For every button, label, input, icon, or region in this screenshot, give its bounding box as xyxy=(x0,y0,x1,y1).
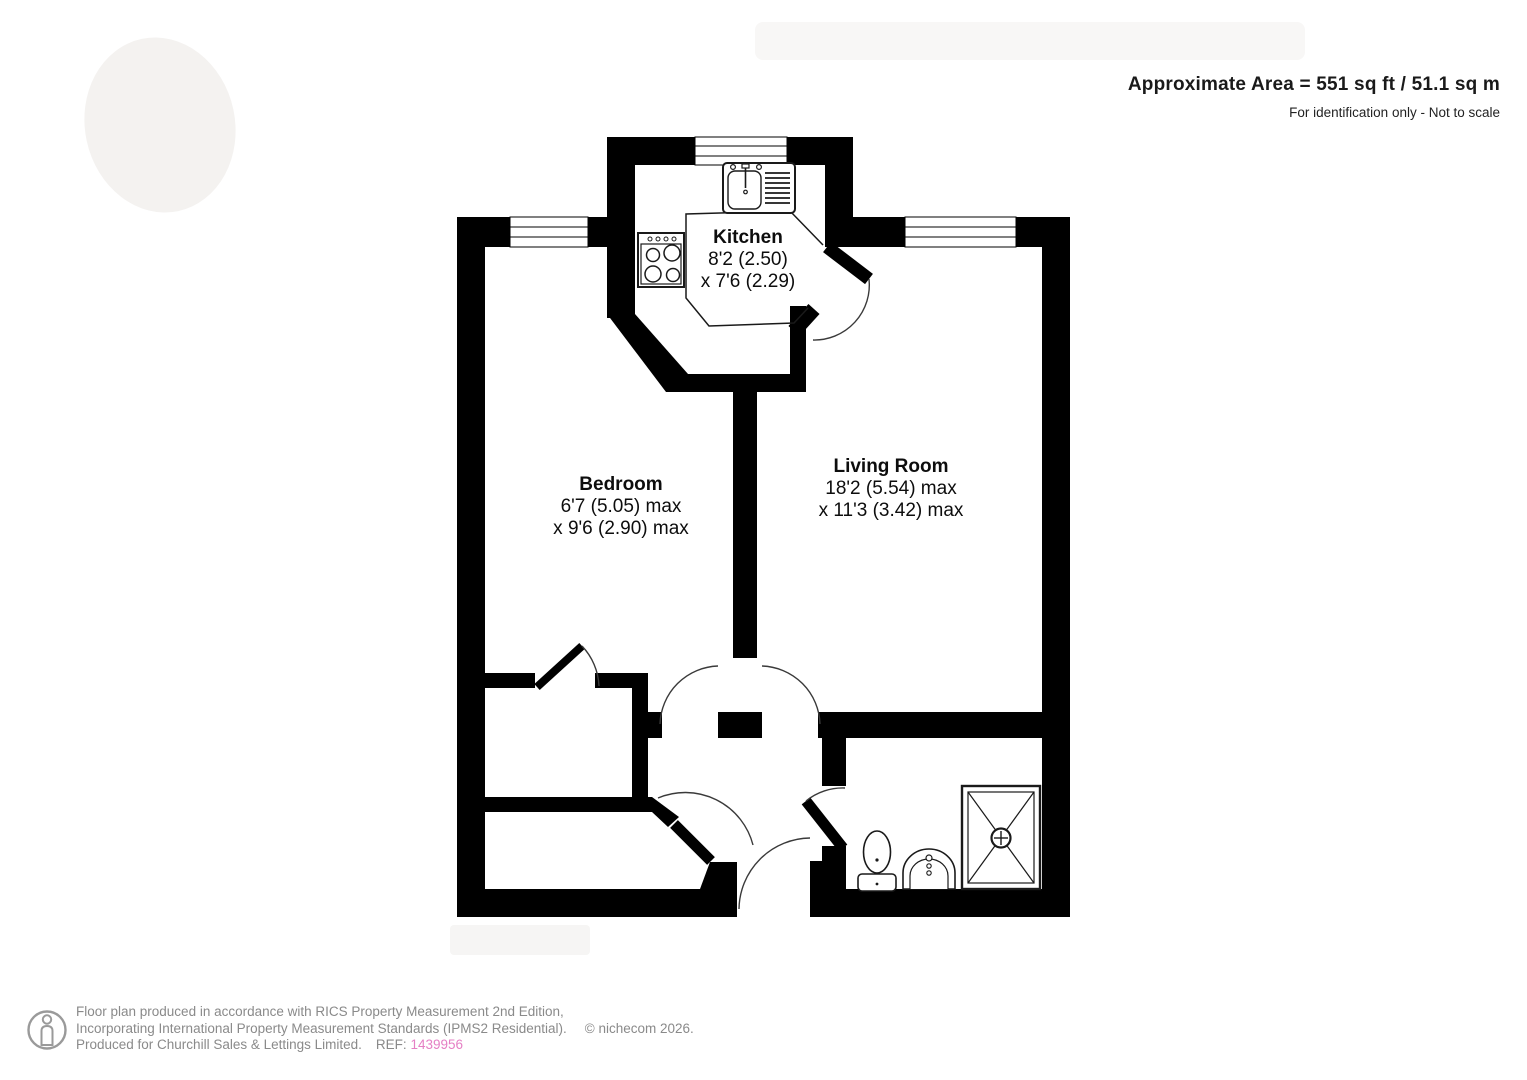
copyright-text: © nichecom 2026. xyxy=(585,1021,694,1036)
front-door-arc xyxy=(739,838,810,909)
nichecom-logo-icon xyxy=(29,1012,66,1049)
room-dimensions-line1: 6'7 (5.05) max xyxy=(553,496,689,518)
footer-disclaimer: Floor plan produced in accordance with R… xyxy=(76,1004,694,1054)
room-name: Living Room xyxy=(819,456,964,478)
floorplan-drawing xyxy=(0,0,1527,1080)
room-label-kitchen: Kitchen 8'2 (2.50) x 7'6 (2.29) xyxy=(701,227,795,293)
sink-drainer-icon xyxy=(723,163,795,213)
footer-line3: Produced for Churchill Sales & Lettings … xyxy=(76,1037,694,1054)
hallway-living-door-arc xyxy=(762,666,820,724)
room-name: Kitchen xyxy=(701,227,795,249)
ref-number: 1439956 xyxy=(410,1037,463,1052)
hob-icon xyxy=(638,233,684,287)
room-dimensions-line2: x 7'6 (2.29) xyxy=(701,271,795,293)
ref-label: REF: xyxy=(376,1037,407,1052)
floorplan-page: Approximate Area = 551 sq ft / 51.1 sq m… xyxy=(0,0,1527,1080)
room-dimensions-line2: x 9'6 (2.90) max xyxy=(553,518,689,540)
kitchen-door-arc xyxy=(813,247,869,340)
room-dimensions-line1: 8'2 (2.50) xyxy=(701,249,795,271)
living-room-window xyxy=(905,217,1016,247)
footer-line3-text: Produced for Churchill Sales & Lettings … xyxy=(76,1037,362,1052)
bedroom-window xyxy=(510,217,588,247)
drainer-lines xyxy=(765,173,790,203)
bathroom-door-arc xyxy=(806,788,845,848)
shower-icon xyxy=(962,786,1040,889)
basin-icon xyxy=(903,849,955,889)
footer-line2-text: Incorporating International Property Mea… xyxy=(76,1021,567,1036)
toilet-icon xyxy=(858,831,896,891)
bedroom-door-arc xyxy=(658,792,753,861)
room-name: Bedroom xyxy=(553,474,689,496)
room-label-living-room: Living Room 18'2 (5.54) max x 11'3 (3.42… xyxy=(819,456,964,522)
room-dimensions-line1: 18'2 (5.54) max xyxy=(819,478,964,500)
hallway-bedroom-door-arc xyxy=(660,666,718,724)
kitchen-window xyxy=(695,137,787,165)
room-label-bedroom: Bedroom 6'7 (5.05) max x 9'6 (2.90) max xyxy=(553,474,689,540)
footer-line1: Floor plan produced in accordance with R… xyxy=(76,1004,694,1021)
closet-door-arc xyxy=(537,646,599,687)
footer-line2: Incorporating International Property Mea… xyxy=(76,1021,694,1038)
room-dimensions-line2: x 11'3 (3.42) max xyxy=(819,500,964,522)
